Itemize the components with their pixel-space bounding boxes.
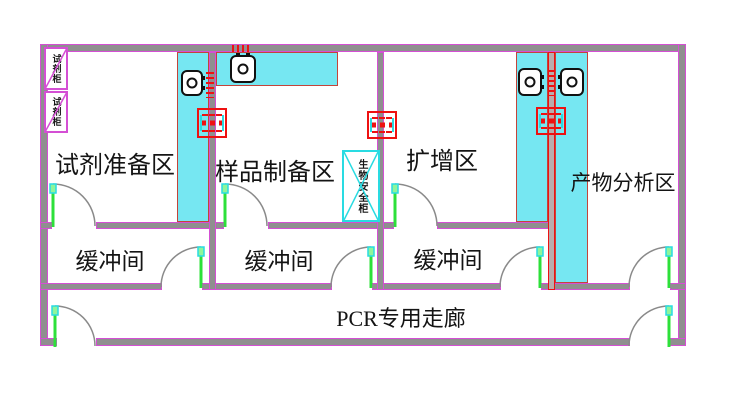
door-arc bbox=[331, 247, 371, 287]
wall-segment bbox=[678, 44, 686, 346]
door-arc bbox=[500, 247, 540, 287]
door-arc bbox=[225, 184, 267, 226]
corridor-label: PCR专用走廊 bbox=[335, 301, 467, 333]
wall-segment bbox=[669, 338, 686, 346]
door-arc bbox=[55, 306, 95, 346]
door-arc bbox=[53, 184, 95, 226]
wall-segment bbox=[670, 283, 686, 290]
door bbox=[52, 306, 95, 347]
door-knob bbox=[537, 247, 543, 256]
pass-box-tick bbox=[392, 118, 394, 132]
door bbox=[392, 184, 437, 227]
reagent-cabinet: 试剂柜 bbox=[44, 47, 68, 90]
pass-box-icon bbox=[536, 107, 566, 135]
instrument-tab bbox=[558, 85, 562, 89]
wall-segment bbox=[40, 283, 162, 290]
rotor-dot bbox=[525, 77, 536, 88]
pass-box-line bbox=[541, 113, 561, 115]
wall-segment bbox=[40, 222, 52, 229]
instrument-tab bbox=[201, 76, 205, 80]
wall-segment bbox=[202, 283, 332, 290]
reagent-cabinet: 试剂柜 bbox=[44, 91, 68, 133]
pass-box-tick bbox=[561, 114, 563, 128]
door-knob bbox=[52, 306, 58, 315]
door-knob bbox=[392, 184, 398, 193]
door bbox=[161, 247, 204, 288]
biosafety-cabinet: 生物安全柜 bbox=[342, 150, 380, 222]
door bbox=[629, 247, 672, 288]
room-label-product-analysis: 产物分析区 bbox=[568, 167, 678, 197]
wall-segment bbox=[96, 222, 224, 229]
biosafety-cabinet-label: 生物安全柜 bbox=[356, 159, 366, 214]
instrument-icon bbox=[230, 55, 256, 83]
instrument-icon bbox=[518, 68, 542, 96]
instrument-tab bbox=[201, 86, 205, 90]
door bbox=[222, 184, 267, 227]
pass-box-icon bbox=[197, 108, 227, 138]
rotor-dot bbox=[238, 64, 249, 75]
door-knob bbox=[666, 247, 672, 256]
wall-segment bbox=[437, 222, 554, 229]
door-arc bbox=[161, 247, 201, 287]
door-knob bbox=[368, 247, 374, 256]
wall-segment bbox=[372, 283, 501, 290]
air-vent-icon bbox=[548, 70, 555, 96]
instrument-tab bbox=[236, 53, 240, 57]
door-knob bbox=[50, 184, 56, 193]
pass-box-line bbox=[202, 130, 222, 132]
buffer-room-label: 缓冲间 bbox=[74, 242, 146, 276]
door-arc bbox=[629, 247, 669, 287]
door bbox=[50, 184, 95, 227]
instrument-tab bbox=[540, 75, 544, 79]
floor-plan: 试剂柜 试剂柜 生物安全柜 试剂准备区 样品制备区 扩增区 产物分析区 缓冲间 … bbox=[0, 0, 740, 411]
door bbox=[629, 306, 672, 347]
wall-segment bbox=[268, 222, 394, 229]
reagent-cabinet-label: 试剂柜 bbox=[52, 97, 61, 127]
pass-box-line bbox=[372, 131, 392, 133]
instrument-tab bbox=[558, 75, 562, 79]
room-label-sample-prep: 样品制备区 bbox=[215, 152, 335, 187]
room-label-reagent-prep: 试剂准备区 bbox=[55, 145, 175, 180]
door bbox=[331, 247, 374, 288]
air-vent-icon bbox=[232, 45, 252, 52]
pass-box-tick bbox=[222, 115, 224, 131]
instrument-tab bbox=[540, 85, 544, 89]
rotor-dot bbox=[567, 77, 578, 88]
pass-box-tick bbox=[370, 118, 372, 132]
instrument-icon bbox=[181, 70, 203, 96]
rotor-dot bbox=[187, 78, 198, 89]
reagent-cabinet-label: 试剂柜 bbox=[52, 54, 61, 84]
door-arc bbox=[395, 184, 437, 226]
pass-box-line bbox=[202, 114, 222, 116]
pass-box-line bbox=[541, 127, 561, 129]
pass-box-tick bbox=[200, 115, 202, 131]
door-knob bbox=[666, 306, 672, 315]
air-vent-icon bbox=[206, 72, 214, 98]
buffer-room-label: 缓冲间 bbox=[412, 241, 484, 275]
door bbox=[500, 247, 543, 288]
wall-segment bbox=[40, 44, 686, 52]
door-knob bbox=[198, 247, 204, 256]
wall-segment bbox=[40, 338, 57, 346]
room-label-amplification: 扩增区 bbox=[404, 141, 480, 176]
wall-segment bbox=[96, 338, 630, 346]
pass-box-icon bbox=[367, 111, 397, 139]
buffer-room-label: 缓冲间 bbox=[243, 242, 315, 276]
pass-box-tick bbox=[539, 114, 541, 128]
pass-box-line bbox=[372, 117, 392, 119]
instrument-icon bbox=[560, 68, 584, 96]
door-arc bbox=[629, 306, 669, 346]
instrument-tab bbox=[246, 53, 250, 57]
